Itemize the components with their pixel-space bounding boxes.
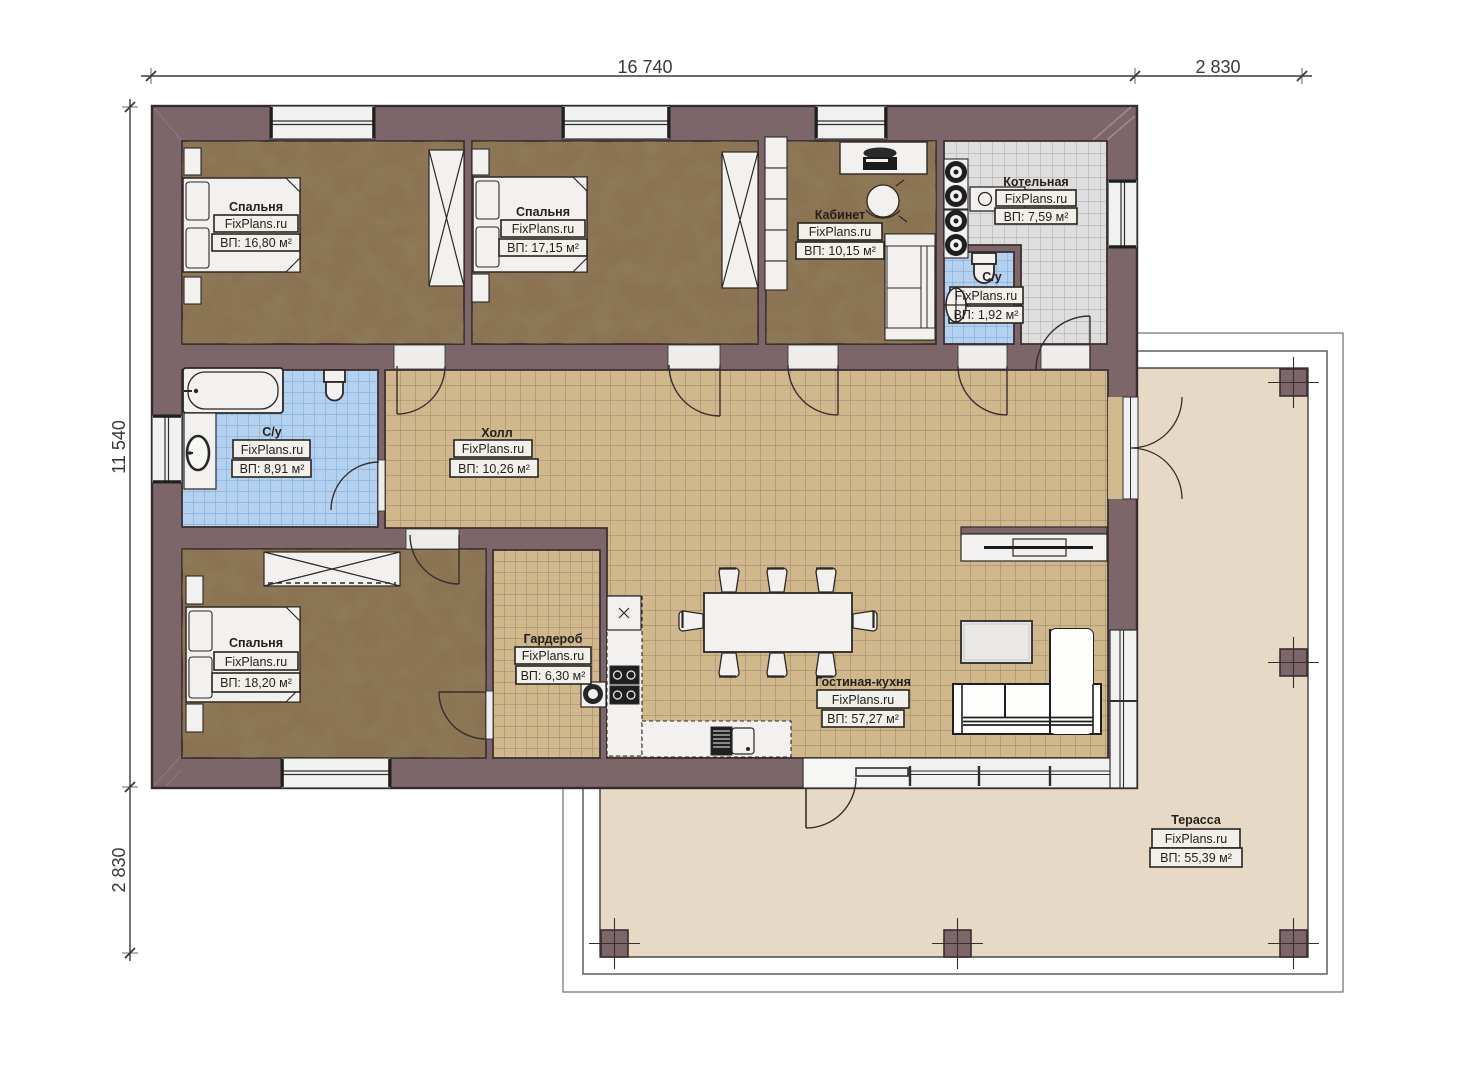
svg-text:ВП: 10,26 м²: ВП: 10,26 м² — [458, 462, 530, 476]
svg-text:FixPlans.ru: FixPlans.ru — [522, 649, 585, 663]
svg-text:ВП: 17,15 м²: ВП: 17,15 м² — [507, 241, 579, 255]
svg-text:ВП: 6,30 м²: ВП: 6,30 м² — [521, 669, 586, 683]
svg-text:ВП: 55,39 м²: ВП: 55,39 м² — [1160, 851, 1232, 865]
svg-text:Котельная: Котельная — [1003, 175, 1068, 189]
svg-text:Спальня: Спальня — [229, 200, 283, 214]
svg-text:FixPlans.ru: FixPlans.ru — [1165, 832, 1228, 846]
svg-text:FixPlans.ru: FixPlans.ru — [225, 217, 288, 231]
svg-text:ВП: 18,20 м²: ВП: 18,20 м² — [220, 676, 292, 690]
svg-text:Холл: Холл — [481, 426, 512, 440]
svg-text:ВП: 16,80 м²: ВП: 16,80 м² — [220, 236, 292, 250]
svg-text:С/у: С/у — [262, 425, 282, 439]
svg-text:FixPlans.ru: FixPlans.ru — [241, 443, 304, 457]
svg-text:FixPlans.ru: FixPlans.ru — [512, 222, 575, 236]
svg-text:FixPlans.ru: FixPlans.ru — [225, 655, 288, 669]
svg-text:11 540: 11 540 — [109, 420, 129, 474]
svg-text:ВП: 1,92 м²: ВП: 1,92 м² — [954, 308, 1019, 322]
svg-text:ВП: 8,91 м²: ВП: 8,91 м² — [240, 462, 305, 476]
svg-text:ВП: 57,27 м²: ВП: 57,27 м² — [827, 712, 899, 726]
svg-text:FixPlans.ru: FixPlans.ru — [1005, 192, 1068, 206]
svg-text:Спальня: Спальня — [516, 205, 570, 219]
svg-text:2 830: 2 830 — [109, 847, 129, 892]
svg-text:Гостиная-кухня: Гостиная-кухня — [815, 675, 911, 689]
svg-text:2 830: 2 830 — [1195, 57, 1240, 77]
svg-text:FixPlans.ru: FixPlans.ru — [832, 693, 895, 707]
svg-text:Гардероб: Гардероб — [523, 632, 582, 646]
svg-text:FixPlans.ru: FixPlans.ru — [955, 289, 1018, 303]
svg-text:ВП: 7,59 м²: ВП: 7,59 м² — [1004, 210, 1069, 224]
svg-text:FixPlans.ru: FixPlans.ru — [809, 225, 872, 239]
svg-text:С/у: С/у — [982, 270, 1002, 284]
svg-text:Спальня: Спальня — [229, 636, 283, 650]
svg-text:ВП: 10,15 м²: ВП: 10,15 м² — [804, 244, 876, 258]
svg-text:FixPlans.ru: FixPlans.ru — [462, 442, 525, 456]
svg-text:Терасса: Терасса — [1171, 813, 1222, 827]
svg-text:16 740: 16 740 — [617, 57, 672, 77]
svg-text:Кабинет: Кабинет — [815, 208, 866, 222]
